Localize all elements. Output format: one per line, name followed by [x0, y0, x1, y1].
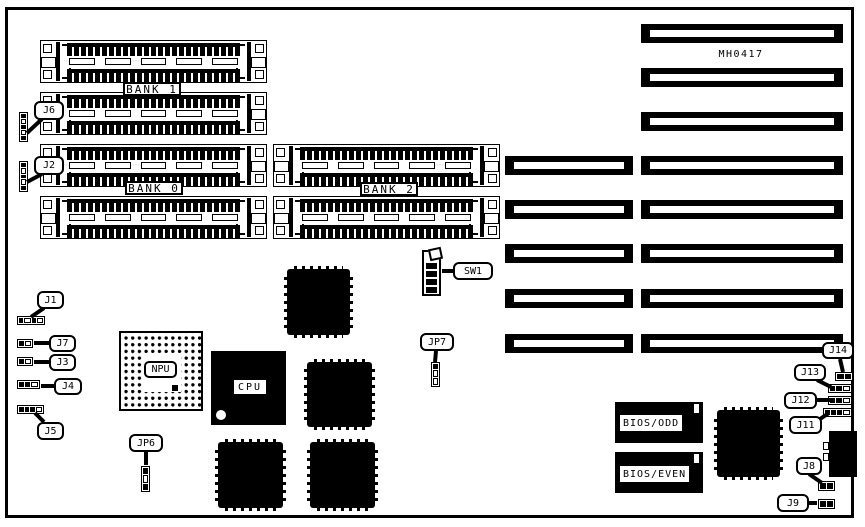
callout-jp7: JP7	[420, 333, 454, 351]
callout-j1: J1	[37, 291, 64, 309]
callout-j6: J6	[34, 101, 64, 120]
callout-j12: J12	[784, 392, 817, 409]
callout-j9: J9	[777, 494, 809, 512]
callout-j4: J4	[54, 378, 82, 395]
callout-j11: J11	[789, 416, 822, 434]
callout-j13: J13	[794, 364, 826, 381]
pointer-j1	[31, 308, 44, 317]
callout-j2: J2	[34, 156, 64, 175]
callout-jp6: JP6	[129, 434, 163, 452]
pointer-jp7	[435, 351, 436, 362]
pointer-j2	[27, 174, 42, 182]
callout-j14: J14	[822, 342, 854, 359]
pointer-j13	[817, 380, 831, 387]
pointer-j14	[840, 359, 843, 372]
callout-j7: J7	[49, 335, 76, 352]
pointer-j5	[35, 413, 44, 422]
motherboard-diagram: MH0417 BANK 1 BANK 0 BANK 2 NPU CPU BIOS	[0, 0, 865, 527]
pointer-j11	[820, 413, 829, 419]
callout-j8: J8	[796, 457, 822, 475]
pointer-j6	[27, 119, 42, 133]
pointer-j8	[809, 474, 822, 483]
callout-j5: J5	[37, 422, 64, 440]
callout-sw1: SW1	[453, 262, 493, 280]
callout-j3: J3	[49, 354, 76, 371]
